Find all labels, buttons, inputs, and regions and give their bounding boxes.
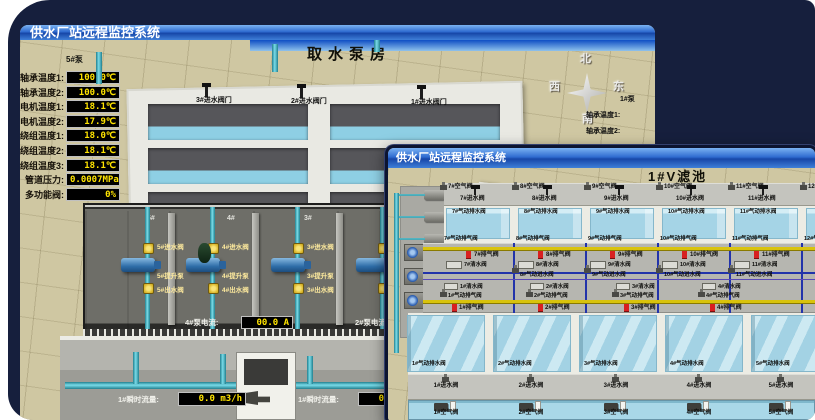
inlet-valve-label: 5#进水阀 (759, 383, 803, 390)
sensor-label: 绕组温度2: (20, 146, 64, 158)
bay-wall (336, 213, 343, 325)
inlet-valve-label: 10#进水阀 (676, 196, 704, 203)
sensor-label: 电机温度2: (20, 117, 64, 129)
bay-wall (168, 213, 175, 325)
clean-valve-meter[interactable] (444, 283, 458, 290)
titlebar-back[interactable]: 供水厂站远程监控系统 (20, 25, 655, 40)
intake-valve-label: 1#进水阀门 (411, 99, 447, 107)
compass-north: 北 (580, 53, 591, 66)
intake-valve-label: 2#进水阀门 (291, 98, 327, 106)
clean-valve-label: 1#清水阀 (460, 284, 483, 290)
lift-pump[interactable] (271, 258, 305, 272)
inlet-valve-stem-icon[interactable] (474, 187, 476, 195)
inlet-valve-stem-icon[interactable] (690, 187, 692, 195)
pneu-inlet-valve-label: 10#气动进水阀 (664, 272, 701, 278)
pneu-exhaust-valve-label: 12#气动排气阀 (804, 236, 815, 242)
exhaust-valve-icon[interactable] (466, 251, 471, 258)
compass-star-icon (567, 73, 607, 113)
pipe-stub (307, 356, 313, 384)
tank-cell (148, 148, 308, 184)
inlet-valve-icon[interactable] (695, 377, 702, 382)
exhaust-valve-icon[interactable] (754, 251, 759, 258)
sensor-label: 绕组温度1: (20, 131, 64, 143)
compass-east: 东 (613, 81, 624, 94)
inlet-valve-label: 11#进水阀 (748, 196, 776, 203)
compass-west: 西 (549, 81, 560, 94)
sensor-label: 绕组温度3: (20, 161, 64, 173)
exhaust-valve-label: 1#排气阀 (459, 305, 484, 312)
air-valve-icon[interactable] (800, 185, 807, 190)
exhaust-valve-icon[interactable] (452, 304, 457, 311)
pneu-exhaust-valve-icon[interactable] (440, 292, 447, 297)
exhaust-valve-icon[interactable] (624, 304, 629, 311)
filter-cell-upper (806, 208, 815, 239)
clean-valve-meter[interactable] (530, 283, 544, 290)
pump-feed (399, 216, 425, 218)
air-valve-icon[interactable] (728, 185, 735, 190)
sensor-value-display[interactable]: 18.1℃ (66, 144, 120, 157)
inlet-valve-icon[interactable] (293, 243, 304, 254)
air-valve-icon[interactable] (656, 185, 663, 190)
air-valve-icon[interactable] (440, 185, 447, 190)
pneu-drain-valve-label: 5#气动排水阀 (756, 361, 790, 367)
scene-filter-pool: 1#V滤池 1#水泵2#水泵3#水泵1#风机2#风机3#风机7#空气阀8#空气阀… (388, 168, 815, 420)
inlet-valve-icon[interactable] (777, 377, 784, 382)
pneu-inlet-valve-label: 11#气动进水阀 (736, 272, 772, 278)
outlet-valve-icon[interactable] (143, 283, 154, 294)
inlet-valve-icon[interactable] (143, 243, 154, 254)
app-background: 供水厂站远程监控系统 取水泵房 5#泵 北 西 南 东 轴承温度1:100.0℃… (8, 0, 815, 420)
bay-wall (252, 213, 259, 325)
pneu-inlet-valve-icon[interactable] (512, 268, 519, 273)
air-valve-label: 2#空气阀 (509, 410, 553, 417)
pneu-drain-valve-label: 10#气动排水阀 (668, 209, 705, 215)
backwash-pipe (423, 279, 815, 280)
pneu-drain-valve-label: 11#气动排水阀 (740, 209, 776, 215)
air-valve-label: 12#空气阀 (808, 184, 815, 191)
air-valve-label: 8#空气阀 (520, 184, 545, 191)
inlet-valve-label: 9#进水阀 (604, 196, 629, 203)
vacuum-tank (198, 243, 211, 263)
clean-valve-meter[interactable] (590, 261, 606, 269)
titlebar-front[interactable]: 供水厂站远程监控系统 (388, 148, 815, 168)
exhaust-valve-icon[interactable] (710, 304, 715, 311)
air-valve-label: 3#空气阀 (594, 410, 638, 417)
pump-current-label: 4#泵电流: (185, 319, 218, 328)
lift-pump[interactable] (121, 258, 155, 272)
clean-valve-label: 10#清水阀 (680, 262, 706, 268)
pipe-stub (272, 44, 278, 72)
inlet-valve-icon[interactable] (527, 377, 534, 382)
clean-valve-meter[interactable] (734, 261, 750, 269)
pneu-exhaust-valve-icon[interactable] (698, 292, 705, 297)
window-title-front: 供水厂站远程监控系统 (396, 152, 506, 164)
lift-pump-label: 5#提升泵 (157, 273, 184, 280)
clean-valve-label: 2#清水阀 (546, 284, 569, 290)
pump-current-display[interactable]: 00.0 A (241, 316, 293, 329)
inlet-valve-stem-icon[interactable] (546, 187, 548, 195)
window-title-back: 供水厂站远程监控系统 (30, 25, 160, 40)
lift-pump-label: 3#提升泵 (307, 273, 334, 280)
exhaust-valve-label: 8#排气阀 (546, 252, 571, 259)
exhaust-valve-label: 2#排气阀 (545, 305, 570, 312)
exhaust-valve-label: 9#排气阀 (618, 252, 643, 259)
inlet-valve-label: 7#进水阀 (460, 196, 485, 203)
inlet-valve-label: 3#进水阀 (307, 244, 334, 251)
exhaust-valve-label: 11#排气阀 (762, 252, 790, 259)
pump-panel-title: 5#泵 (66, 55, 83, 64)
inlet-valve-label: 4#进水阀 (222, 244, 249, 251)
sensor-value-display[interactable]: 0% (66, 188, 120, 201)
flow-label: 1#瞬时流量: (118, 396, 159, 405)
exhaust-valve-label: 7#排气阀 (474, 252, 499, 259)
inlet-valve-icon[interactable] (442, 377, 449, 382)
air-valve-label: 5#空气阀 (759, 410, 803, 417)
lift-pump-label: 4#提升泵 (222, 273, 249, 280)
clean-valve-meter[interactable] (662, 261, 678, 269)
pump-room: 5#4#3#2#5#进水阀5#提升泵5#出水阀4#进水阀4#提升泵4#出水阀3#… (83, 203, 420, 340)
pneu-drain-valve-label: 4#气动排水阀 (670, 361, 704, 367)
clean-valve-label: 3#清水阀 (632, 284, 655, 290)
inlet-valve-label: 3#进水阀 (594, 383, 638, 390)
bay-id-label: 4# (227, 215, 235, 223)
pneu-exhaust-valve-label: 2#气动排气阀 (534, 293, 568, 299)
intake-valve-icon[interactable] (205, 85, 208, 97)
sensor-value-display[interactable]: 100.0℃ (66, 71, 120, 84)
clean-valve-meter[interactable] (616, 283, 630, 290)
sensor-value-display[interactable]: 18.1℃ (66, 159, 120, 172)
outlet-valve-label: 5#出水阀 (157, 287, 184, 294)
tank-cell (330, 104, 500, 140)
pneu-exhaust-valve-label: 1#气动排气阀 (448, 293, 482, 299)
exhaust-valve-label: 4#排气阀 (717, 305, 742, 312)
clean-valve-label: 7#清水阀 (464, 262, 487, 268)
tank-cell (148, 104, 308, 140)
side-panel-label: 1#泵 (620, 96, 635, 104)
outlet-valve-icon[interactable] (208, 283, 219, 294)
side-panel-label: 轴承温度2: (586, 128, 620, 136)
air-valve-label: 7#空气阀 (448, 184, 473, 191)
pneu-exhaust-valve-label: 10#气动排气阀 (660, 236, 697, 242)
pneu-inlet-valve-icon[interactable] (656, 268, 663, 273)
clean-valve-label: 8#清水阀 (536, 262, 559, 268)
side-panel-label: 轴承温度1: (586, 112, 620, 120)
bay-id-label: 3# (304, 215, 312, 223)
inlet-valve-stem-icon[interactable] (618, 187, 620, 195)
window-filter-pool: 供水厂站远程监控系统 1#V滤池 1#水泵2#水泵3#水泵1#风机2#风机3#风… (385, 145, 815, 420)
clean-valve-label: 4#清水阀 (718, 284, 741, 290)
sensor-label: 多功能阀: (20, 190, 64, 202)
flow-meter-device[interactable] (236, 352, 296, 420)
pneu-exhaust-valve-icon[interactable] (526, 292, 533, 297)
exhaust-valve-icon[interactable] (610, 251, 615, 258)
pneu-drain-valve-label: 9#气动排水阀 (596, 209, 630, 215)
sensor-value-display[interactable]: 100.0℃ (66, 86, 120, 99)
pneu-inlet-valve-label: 8#气动进水阀 (520, 272, 554, 278)
pipe-stub (374, 40, 380, 52)
sensor-value-display[interactable]: 18.0℃ (66, 129, 120, 142)
flow-label: 1#瞬时流量: (298, 396, 339, 405)
air-valve-label: 9#空气阀 (592, 184, 617, 191)
pneu-exhaust-valve-label: 4#气动排气阀 (706, 293, 740, 299)
pneu-drain-valve-label: 8#气动排水阀 (524, 209, 558, 215)
sensor-value-display[interactable]: 18.1℃ (66, 100, 120, 113)
exhaust-valve-label: 3#排气阀 (631, 305, 656, 312)
inlet-valve-label: 4#进水阀 (677, 383, 721, 390)
pneu-drain-valve-label: 3#气动排水阀 (584, 361, 618, 367)
exhaust-valve-icon[interactable] (538, 251, 543, 258)
pump-unit[interactable] (424, 190, 444, 200)
intake-valve-icon[interactable] (300, 86, 303, 98)
inlet-valve-icon[interactable] (612, 377, 619, 382)
pneu-inlet-valve-icon[interactable] (728, 268, 735, 273)
outlet-valve-label: 3#出水阀 (307, 287, 334, 294)
pneu-exhaust-valve-label: 8#气动排气阀 (516, 236, 550, 242)
pump-unit[interactable] (424, 212, 444, 222)
blower-fan-icon (407, 295, 418, 306)
inlet-valve-label: 2#进水阀 (509, 383, 553, 390)
pneu-drain-valve-label: 1#气动排水阀 (412, 361, 446, 367)
blower-fan-icon (407, 271, 418, 282)
inlet-valve-label: 8#进水阀 (532, 196, 557, 203)
exhaust-valve-icon[interactable] (682, 251, 687, 258)
intake-valve-icon[interactable] (420, 87, 423, 99)
outlet-valve-icon[interactable] (293, 283, 304, 294)
air-valve-label: 1#空气阀 (424, 410, 468, 417)
sensor-label: 电机温度1: (20, 102, 64, 114)
pipe-stub (133, 352, 139, 384)
clean-valve-meter[interactable] (702, 283, 716, 290)
flow-display[interactable]: 0.0 m3/h (178, 392, 246, 406)
exhaust-valve-label: 10#排气阀 (690, 252, 718, 259)
air-scour-pipe (423, 247, 815, 250)
pump-feed (399, 194, 425, 196)
pipe-stub (96, 52, 102, 84)
air-valve-label: 4#空气阀 (677, 410, 721, 417)
outlet-valve-label: 4#出水阀 (222, 287, 249, 294)
clean-valve-meter[interactable] (446, 261, 462, 269)
clean-valve-label: 9#清水阀 (608, 262, 631, 268)
clean-valve-meter[interactable] (518, 261, 534, 269)
pneu-drain-valve-label: 7#气动排水阀 (452, 209, 486, 215)
pneu-drain-valve-label: 2#气动排水阀 (498, 361, 532, 367)
air-scour-pipe (423, 300, 815, 303)
sensor-value-display[interactable]: 0.0007MPa (66, 173, 120, 186)
inlet-valve-label: 1#进水阀 (424, 383, 468, 390)
sensor-label: 管道压力: (20, 175, 64, 187)
exhaust-valve-icon[interactable] (538, 304, 543, 311)
pneu-exhaust-valve-label: 11#气动排气阀 (732, 236, 768, 242)
pneu-inlet-valve-label: 9#气动进水阀 (592, 272, 626, 278)
pneu-exhaust-valve-icon[interactable] (612, 292, 619, 297)
pneu-inlet-valve-icon[interactable] (584, 268, 591, 273)
pump-current-label: 2#泵电流: (355, 319, 388, 328)
pneu-exhaust-valve-label: 9#气动排气阀 (588, 236, 622, 242)
pump-feed (399, 238, 425, 240)
intake-valve-label: 3#进水阀门 (196, 97, 232, 105)
sensor-label: 轴承温度2: (20, 88, 64, 100)
sensor-value-display[interactable]: 17.9℃ (66, 115, 120, 128)
inlet-valve-label: 5#进水阀 (157, 244, 184, 251)
sensor-label: 轴承温度1: (20, 73, 64, 85)
inlet-valve-stem-icon[interactable] (762, 187, 764, 195)
pneu-exhaust-valve-label: 7#气动排气阀 (444, 236, 478, 242)
compass (567, 73, 607, 113)
pipe-stub (220, 354, 226, 384)
clean-valve-label: 11#清水阀 (752, 262, 777, 268)
pneu-exhaust-valve-label: 3#气动排气阀 (620, 293, 654, 299)
air-valve-icon[interactable] (512, 185, 519, 190)
blower-fan-icon (407, 247, 418, 258)
air-valve-icon[interactable] (584, 185, 591, 190)
